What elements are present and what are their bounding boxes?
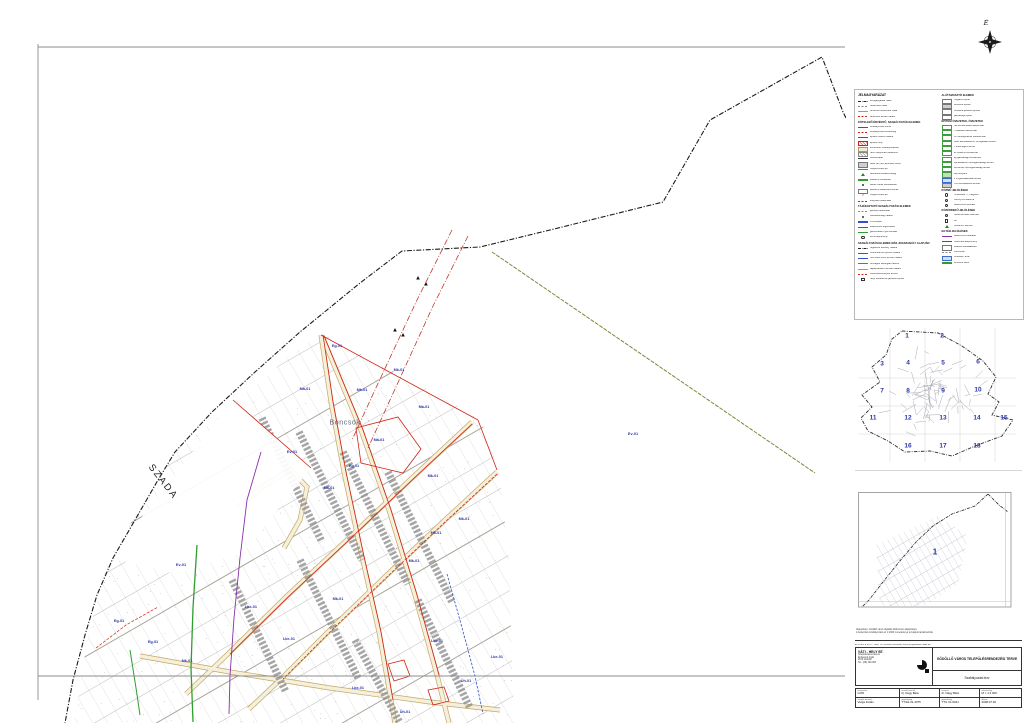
legend-swatch-sym-cir	[942, 204, 952, 207]
legend-column: ALÁTÁMASZTÓ ELEMEKmeglévő épülettervezet…	[942, 92, 1021, 317]
legend-item-label: javasolt telekalakítás	[954, 246, 977, 249]
neighbor-municipality-label: SZADA	[146, 462, 180, 502]
firm-cell: VÁTI - HELY BT. Településtervezési ésÉpí…	[856, 648, 932, 685]
signature-cell-value: dr. Nagy Béla	[942, 692, 978, 695]
legend-item: övezethatár	[858, 157, 937, 161]
overview-sheet-number: 18	[973, 443, 980, 450]
legend-item: kötelező telekösszevonás	[858, 189, 937, 193]
zone-code-label: Mk-01	[333, 597, 344, 601]
legend-item: javasolt telekhatár	[858, 210, 937, 214]
legend-item-label: K különleges terület	[954, 146, 976, 149]
zone-code-label: Lke-01	[245, 605, 257, 609]
legend-panel: JELMAGYARÁZATközigazgatási határbelterül…	[854, 89, 1024, 320]
legend-swatch-b-gray	[942, 104, 952, 107]
legend-swatch-b-wht	[942, 99, 952, 102]
legend-section-heading: ALÁTÁMASZTÓ ELEMEK	[942, 94, 1021, 97]
legend-swatch-h-gray	[858, 152, 868, 155]
legend-item-label: tervezési terület határa	[870, 116, 895, 119]
legend-swatch-sym-tri	[942, 225, 952, 228]
legend-item: Má általános mezőgazdasági terület	[942, 162, 1021, 166]
legend-swatch-l-red	[858, 136, 868, 139]
legend-item: meglévő épület	[942, 99, 1021, 103]
overview-sheet-number: 3	[880, 361, 884, 368]
legend-item-label: gazdasági épület	[954, 115, 973, 118]
overview-sheet-number: 15	[1000, 415, 1007, 422]
legend-swatch-sym-cir	[942, 214, 952, 217]
zone-code-label: Mk-01	[409, 559, 420, 563]
panel-divider	[855, 640, 1022, 641]
legend-item: vízfelület, árok	[942, 256, 1021, 260]
legend-item-label: megszüntető jel	[870, 194, 888, 197]
legend-item-label: műemléki környezet határa	[870, 252, 900, 255]
legend-section-heading: EGYÉB JELÖLÉSEK	[942, 230, 1021, 233]
place-name-label: Boncsok	[329, 420, 360, 427]
legend-swatch-l-grn	[942, 261, 952, 264]
legend-swatch-l-pur	[942, 235, 952, 238]
zone-code-label: Mk-01	[459, 517, 470, 521]
legend-item-label: országos ökológiai hálózat	[870, 263, 899, 266]
legend-swatch-l-redd	[858, 199, 868, 202]
legend-section-heading: TÁJÉKOZTATÓ SZABÁLYOZÁSI ELEMEK	[858, 205, 937, 208]
legend-item-label: javasolt telekhatár	[870, 210, 890, 213]
legend-item: emlékmű, kereszt	[942, 225, 1021, 229]
legend-item-label: tervezett fasor	[954, 262, 970, 265]
zone-code-label: Mk-01	[394, 368, 405, 372]
legend-item: javasolt telekalakítás	[942, 245, 1021, 249]
legend-swatch-b-grn	[942, 151, 952, 154]
signature-cell-value: M = 1:4 000	[982, 692, 1020, 695]
legend-swatch-b-grn	[942, 130, 952, 133]
legend-item-label: csúszásveszélyes terület	[870, 273, 898, 276]
signature-cell-value: TT/1É 01-4075	[902, 701, 938, 704]
legend-item-label: emlékmű, kereszt	[954, 225, 974, 228]
legend-swatch-l-redd	[858, 131, 868, 134]
legend-swatch-b-gray	[942, 183, 952, 186]
legend-swatch-l-blu	[858, 220, 868, 223]
legend-swatch-b-grn	[942, 146, 952, 149]
legend-item-label: védőtávolság határa	[870, 215, 893, 218]
legend-item-label: kötelező zöldfelület	[870, 179, 891, 182]
legend-item-label: tervezett belterületi határ	[870, 110, 898, 113]
legend-item: országos ökológiai hálózat	[858, 262, 937, 266]
signature-cell: méretarány:M = 1:4 000	[980, 689, 1021, 698]
legend-item-label: NATURA 2000 terület határa	[870, 257, 902, 260]
overview-sheet-number: 13	[939, 415, 946, 422]
legend-item: telek be nem építhető része	[858, 162, 937, 166]
legend-item: megszüntető jel	[858, 168, 937, 172]
legend-swatch-l-org	[858, 110, 868, 113]
legend-item: nem beépíthető telekrész	[858, 152, 937, 156]
legend-item: szabályozási vonal	[858, 125, 937, 129]
zone-code-label: Má-01	[374, 438, 385, 442]
legend-swatch-b-blu	[942, 178, 952, 181]
legend-item: irányadó telekhatár	[858, 199, 937, 203]
legend-item: közműépítmény	[858, 236, 937, 240]
legend-item-label: szennyvízcsatorna	[954, 199, 975, 202]
signature-cell-value: GÖD	[858, 692, 898, 695]
legend-item: K különleges terület	[942, 146, 1021, 150]
legend-item: kút	[942, 219, 1021, 223]
legend-swatch-sym-sq	[858, 278, 868, 281]
overview-sheet-number: 10	[974, 387, 981, 394]
legend-item: tervezett fasor	[942, 261, 1021, 265]
legend-swatch-sym-dot	[858, 215, 868, 218]
legend-item: tervezési terület határa	[858, 115, 937, 119]
legend-item-label: közműépítmény	[870, 236, 888, 239]
zone-code-label: Lke-01	[491, 655, 503, 659]
legend-item: tervezett belterületi határ	[858, 110, 937, 114]
legend-item: elektromos légvezeték	[858, 225, 937, 229]
legend-item: bontásra javasolt épület	[942, 109, 1021, 113]
overview-sheet-number: 14	[973, 415, 980, 422]
legend-item: Lf falusias lakóterület	[942, 130, 1021, 134]
zone-code-label: Eg-01	[148, 640, 158, 644]
zone-code-label: Má-01	[300, 387, 311, 391]
signature-grid: törzsszám:GÖDvezető tervező:ifj. Nagy Bé…	[855, 688, 1022, 708]
location-note-line: A belterületi szabályozást az 1:2000 mér…	[856, 631, 1020, 634]
signature-cell: törzsszám:GÖD	[856, 689, 900, 698]
legend-item: Eg gazdasági erdőterület	[942, 156, 1021, 160]
legend-swatch-l-brn	[858, 168, 868, 171]
legend-swatch-sym-sq	[942, 219, 952, 222]
legend-swatch-l-grayd	[858, 210, 868, 213]
legend-swatch-sym-cir	[858, 236, 868, 239]
zone-code-label: Mk-01	[431, 531, 442, 535]
legend-item: gázvezeték nyomvonala	[858, 231, 937, 235]
legend-item-label: tájképvédelmi terület határa	[870, 268, 901, 271]
legend-item-label: V vízgazdálkodási terület	[954, 178, 982, 181]
legend-item-label: hírközlési alépítmény	[954, 241, 977, 244]
overview-sheet-number: 17	[939, 443, 946, 450]
legend-item: régészeti lelőhely határa	[858, 246, 937, 250]
legend-item-label: vízvezeték	[870, 221, 882, 224]
overview-sheet-number: 16	[904, 443, 911, 450]
legend-item: szennyvízcsatorna	[942, 198, 1021, 202]
legend-item-label: nem beépíthető telekrész	[870, 152, 898, 155]
legend-swatch-l-blu	[858, 257, 868, 260]
legend-item: V vízgazdálkodási terület	[942, 178, 1021, 182]
overview-sheet-number: 1	[905, 333, 909, 340]
zone-code-label: Üh-01	[461, 679, 472, 683]
legend-swatch-b-wht	[942, 245, 952, 248]
legend-swatch-l-grn	[858, 231, 868, 234]
legend-column: JELMAGYARÁZATközigazgatási határbelterül…	[858, 92, 937, 317]
legend-section-heading: KÖZMŰ JELÖLÉSEK	[942, 189, 1021, 192]
legend-swatch-b-grn	[942, 167, 952, 170]
legend-item: elektromos földkábel	[942, 235, 1021, 239]
legend-item-label: helyi védelemre javasolt épület	[870, 278, 904, 281]
overview-sheet-number: 7	[880, 388, 884, 395]
legend-section-heading: SZABÁLYOZÁSI ELEMEK MÁS JOGSZABÁLY ALAPJ…	[858, 242, 937, 245]
sheet-title: Szabályozási terv	[933, 671, 1021, 685]
legend-swatch-l-grn	[858, 262, 868, 265]
signature-cell: tervező:dr. Nagy Béla	[940, 689, 980, 698]
signature-cell-value: 2008.07.30	[982, 701, 1020, 704]
legend-item: Lke kertvárosias lakóterület	[942, 125, 1021, 129]
legend-swatch-l-org	[858, 267, 868, 270]
legend-swatch-l-blk	[858, 157, 868, 160]
title-block: Ez a terv a VÁTI - HELY BT. szellemi ter…	[855, 644, 1022, 708]
legend-item: kötelező zöldfelület	[858, 178, 937, 182]
legend-swatch-b-grn	[942, 157, 952, 160]
signature-cell: vezető tervező:ifj. Nagy Béla	[900, 689, 940, 698]
legend-swatch-b-wht	[942, 115, 952, 118]
firm-logo-square-icon	[925, 669, 929, 673]
legend-swatch-b-grn	[942, 162, 952, 165]
compass-north-label: É	[984, 19, 989, 27]
legend-item-label: építési övezet határa	[870, 136, 893, 139]
legend-swatch-b-grnf	[942, 172, 952, 175]
project-title: GÖDÖLLŐ VÁROS TELEPÜLÉSRENDEZÉSI TERVE	[933, 648, 1021, 671]
legend-item: telken belüli védőfásítás	[858, 183, 937, 187]
overview-sheet-number: 12	[904, 415, 911, 422]
legend-item: NATURA 2000 terület határa	[858, 257, 937, 261]
legend-swatch-l-red	[858, 125, 868, 128]
legend-item-label: Lke kertvárosias lakóterület	[954, 125, 984, 128]
legend-item-label: elektromos vezeték	[954, 204, 976, 207]
zone-code-label: Eg-01	[332, 344, 342, 348]
legend-section-heading: JELMAGYARÁZAT	[858, 94, 937, 98]
legend-item-label: Mk kertes mezőgazdasági terület	[954, 167, 991, 170]
overview-sheet-number: 8	[906, 388, 910, 395]
location-sheet-number: 1	[933, 548, 937, 557]
legend-item: műemléki környezet határa	[858, 252, 937, 256]
legend-item: csúszásveszélyes terület	[858, 273, 937, 277]
legend-item-label: kötelező telekösszevonás	[870, 189, 899, 192]
legend-item-label: Má általános mezőgazdasági terület	[954, 162, 994, 165]
legend-item-label: Üh hétvégiházas üdülőterület	[954, 136, 986, 139]
location-notes: Alaptérkép: Gödöllő város digitális föld…	[856, 628, 1020, 634]
zone-code-label: Eg-01	[349, 464, 359, 468]
legend-swatch-l-pur	[858, 252, 868, 255]
zone-code-label: Mk-01	[357, 388, 368, 392]
legend-swatch-b-wht	[942, 109, 952, 112]
zone-code-label: Lke-01	[283, 637, 295, 641]
legend-item-label: elektromos földkábel	[954, 235, 977, 238]
legend-item-label: szabályozási vonal	[870, 126, 891, 129]
legend-item: közigazgatási határ	[858, 99, 937, 103]
signature-cell: dátum:2008.07.30	[980, 698, 1021, 707]
legend-item: elektromos vezeték	[942, 204, 1021, 208]
legend-swatch-l-grn	[858, 178, 868, 181]
signature-cell-value: ifj. Nagy Béla	[902, 692, 938, 695]
overview-sheet-number: 11	[870, 415, 877, 422]
legend-swatch-b-gray	[858, 162, 868, 165]
overview-sheet-number: 4	[906, 360, 910, 367]
zone-code-label: Má-01	[324, 486, 335, 490]
legend-item-label: elektromos légvezeték	[870, 226, 895, 229]
legend-item-label: szintvonal	[954, 251, 965, 254]
legend-swatch-sym-cir	[942, 199, 952, 202]
legend-swatch-l-pur	[858, 226, 868, 229]
legend-item-label: övezethatár	[870, 157, 883, 160]
legend-item: vízvezeték — meglévő	[942, 193, 1021, 197]
legend-swatch-l-grayd	[942, 251, 952, 254]
legend-item-label: építési hely	[870, 142, 883, 145]
zone-code-label: Eg-01	[114, 619, 124, 623]
legend-item: vízvezeték	[858, 220, 937, 224]
zone-code-label: Ev-01	[287, 450, 297, 454]
legend-item: közterület szabályozással	[858, 146, 937, 150]
legend-item-label: Lf falusias lakóterület	[954, 130, 978, 133]
legend-item: gazdasági épület	[942, 115, 1021, 119]
legend-section-heading: KÖZÉRDEKŰ JELÖLÉSEK	[942, 209, 1021, 212]
legend-swatch-b-yel	[858, 147, 868, 150]
legend-item: tájképvédelmi terület határa	[858, 267, 937, 271]
zone-code-label: Ev-01	[176, 563, 186, 567]
legend-item: helyi védelemre javasolt épület	[858, 278, 937, 282]
signature-cell: jogosultság:TT/1 01-5041	[940, 698, 980, 707]
text-overlays: É SZADA Boncsok Eg-01Má-01Mk-01Mk-01Má-0…	[0, 0, 1024, 723]
plan-sheet: É SZADA Boncsok Eg-01Má-01Mk-01Mk-01Má-0…	[0, 0, 1024, 723]
zone-code-label: Üh-01	[400, 710, 411, 714]
legend-swatch-l-redd	[858, 273, 868, 276]
legend-swatch-sym-cir	[942, 193, 952, 196]
zone-code-label: Ev-01	[628, 432, 638, 436]
legend-item-label: kút	[954, 220, 957, 223]
overview-sheet-number: 2	[940, 333, 944, 340]
legend-item: Mk kertes mezőgazdasági terület	[942, 167, 1021, 171]
legend-item-label: vízfelület, árok	[954, 256, 970, 259]
legend-swatch-l-blu	[942, 240, 952, 243]
legend-item-label: meglévő épület	[954, 99, 971, 102]
legend-item: hírközlési alépítmény	[942, 240, 1021, 244]
legend-item-label: transzformátor állomás	[954, 214, 979, 217]
legend-item: védőtávolság határa	[858, 215, 937, 219]
legend-item: transzformátor állomás	[942, 214, 1021, 218]
overview-sheet-number: 9	[941, 388, 945, 395]
legend-item-label: irányadó telekhatár	[870, 200, 891, 203]
legend-item-label: tervezett épület	[954, 104, 971, 107]
zone-code-label: Mk-01	[428, 474, 439, 478]
signature-cell: irányító tervező:Varga Zoltán	[856, 698, 900, 707]
legend-swatch-l-grayd	[858, 105, 868, 108]
legend-section-heading: KÖTELEZŐ ÉRVÉNYŰ, SZABÁLYOZÁSI ELEMEK	[858, 121, 937, 124]
legend-item-label: vízvezeték — meglévő	[954, 194, 979, 197]
legend-swatch-sym-x: ×	[858, 194, 868, 197]
legend-item-label: közterület szabályozással	[870, 147, 899, 150]
legend-swatch-sym-tri	[858, 173, 868, 176]
legend-item: Ev védelmi erdőterület	[942, 151, 1021, 155]
legend-item: építési hely	[858, 141, 937, 145]
legend-section-heading: ÉPÍTÉSI ÖVEZETEK, ÖVEZETEK	[942, 120, 1021, 123]
title-block-main: VÁTI - HELY BT. Településtervezési ésÉpí…	[855, 647, 1022, 686]
legend-item-label: közigazgatási határ	[870, 100, 892, 103]
legend-item: ×megszüntető jel	[858, 194, 937, 198]
overview-sheet-number: 6	[976, 359, 980, 366]
legend-item-label: Zkp közpark	[954, 173, 968, 176]
legend-swatch-b-grn	[942, 141, 952, 144]
legend-item: szabályozási szélesség	[858, 131, 937, 135]
legend-item-label: Eg gazdasági erdőterület	[954, 157, 982, 160]
legend-item-label: szabályozási szélesség	[870, 131, 896, 134]
legend-item-label: megszüntető jel	[870, 168, 888, 171]
legend-item-label: telken belüli védőfásítás	[870, 184, 897, 187]
legend-item-label: gázvezeték nyomvonala	[870, 231, 897, 234]
legend-swatch-l-redd	[858, 115, 868, 118]
legend-item-label: belterületi határ	[870, 105, 887, 108]
legend-swatch-b-wht	[858, 189, 868, 192]
legend-item: KÖu közlekedési terület	[942, 183, 1021, 187]
legend-swatch-b-grn	[942, 135, 952, 138]
legend-item-label: bontásra javasolt épület	[954, 110, 980, 113]
copyright-note: Ez a terv a VÁTI - HELY BT. szellemi ter…	[855, 644, 1022, 646]
title-cell: GÖDÖLLŐ VÁROS TELEPÜLÉSRENDEZÉSI TERVE S…	[932, 648, 1021, 685]
zone-code-label: Má-01	[419, 405, 430, 409]
legend-item-label: régészeti lelőhely határa	[870, 247, 897, 250]
zone-code-label: Lke-01	[431, 639, 443, 643]
legend-item: építési övezet határa	[858, 136, 937, 140]
legend-item: Üh hétvégiházas üdülőterület	[942, 135, 1021, 139]
legend-item: Zkp közpark	[942, 172, 1021, 176]
legend-swatch-l-blkdd	[858, 99, 868, 102]
legend-item: beültetési kötelezettség	[858, 173, 937, 177]
legend-item: belterületi határ	[858, 105, 937, 109]
legend-swatch-sym-dot	[858, 184, 868, 187]
legend-swatch-b-blu	[942, 256, 952, 259]
signature-cell: jogosultság:TT/1É 01-4075	[900, 698, 940, 707]
signature-cell-value: Varga Zoltán	[858, 701, 898, 704]
signature-cell-value: TT/1 01-5041	[942, 701, 978, 704]
legend-item: tervezett épület	[942, 104, 1021, 108]
legend-item-label: telek be nem építhető része	[870, 163, 901, 166]
overview-sheet-number: 5	[941, 360, 945, 367]
legend-item: Gksz kereskedelmi, szolgáltató terület	[942, 141, 1021, 145]
zone-code-label: Mk-01	[182, 659, 193, 663]
zone-code-label: Lke-01	[352, 686, 364, 690]
legend-item-label: Ev védelmi erdőterület	[954, 152, 979, 155]
legend-item-label: KÖu közlekedési terület	[954, 183, 980, 186]
legend-swatch-h-red	[858, 141, 868, 144]
legend-swatch-l-blkdd	[858, 246, 868, 249]
legend-item-label: Gksz kereskedelmi, szolgáltató terület	[954, 141, 996, 144]
legend-swatch-b-grn	[942, 125, 952, 128]
legend-item-label: beültetési kötelezettség	[870, 173, 896, 176]
legend-item: szintvonal	[942, 251, 1021, 255]
